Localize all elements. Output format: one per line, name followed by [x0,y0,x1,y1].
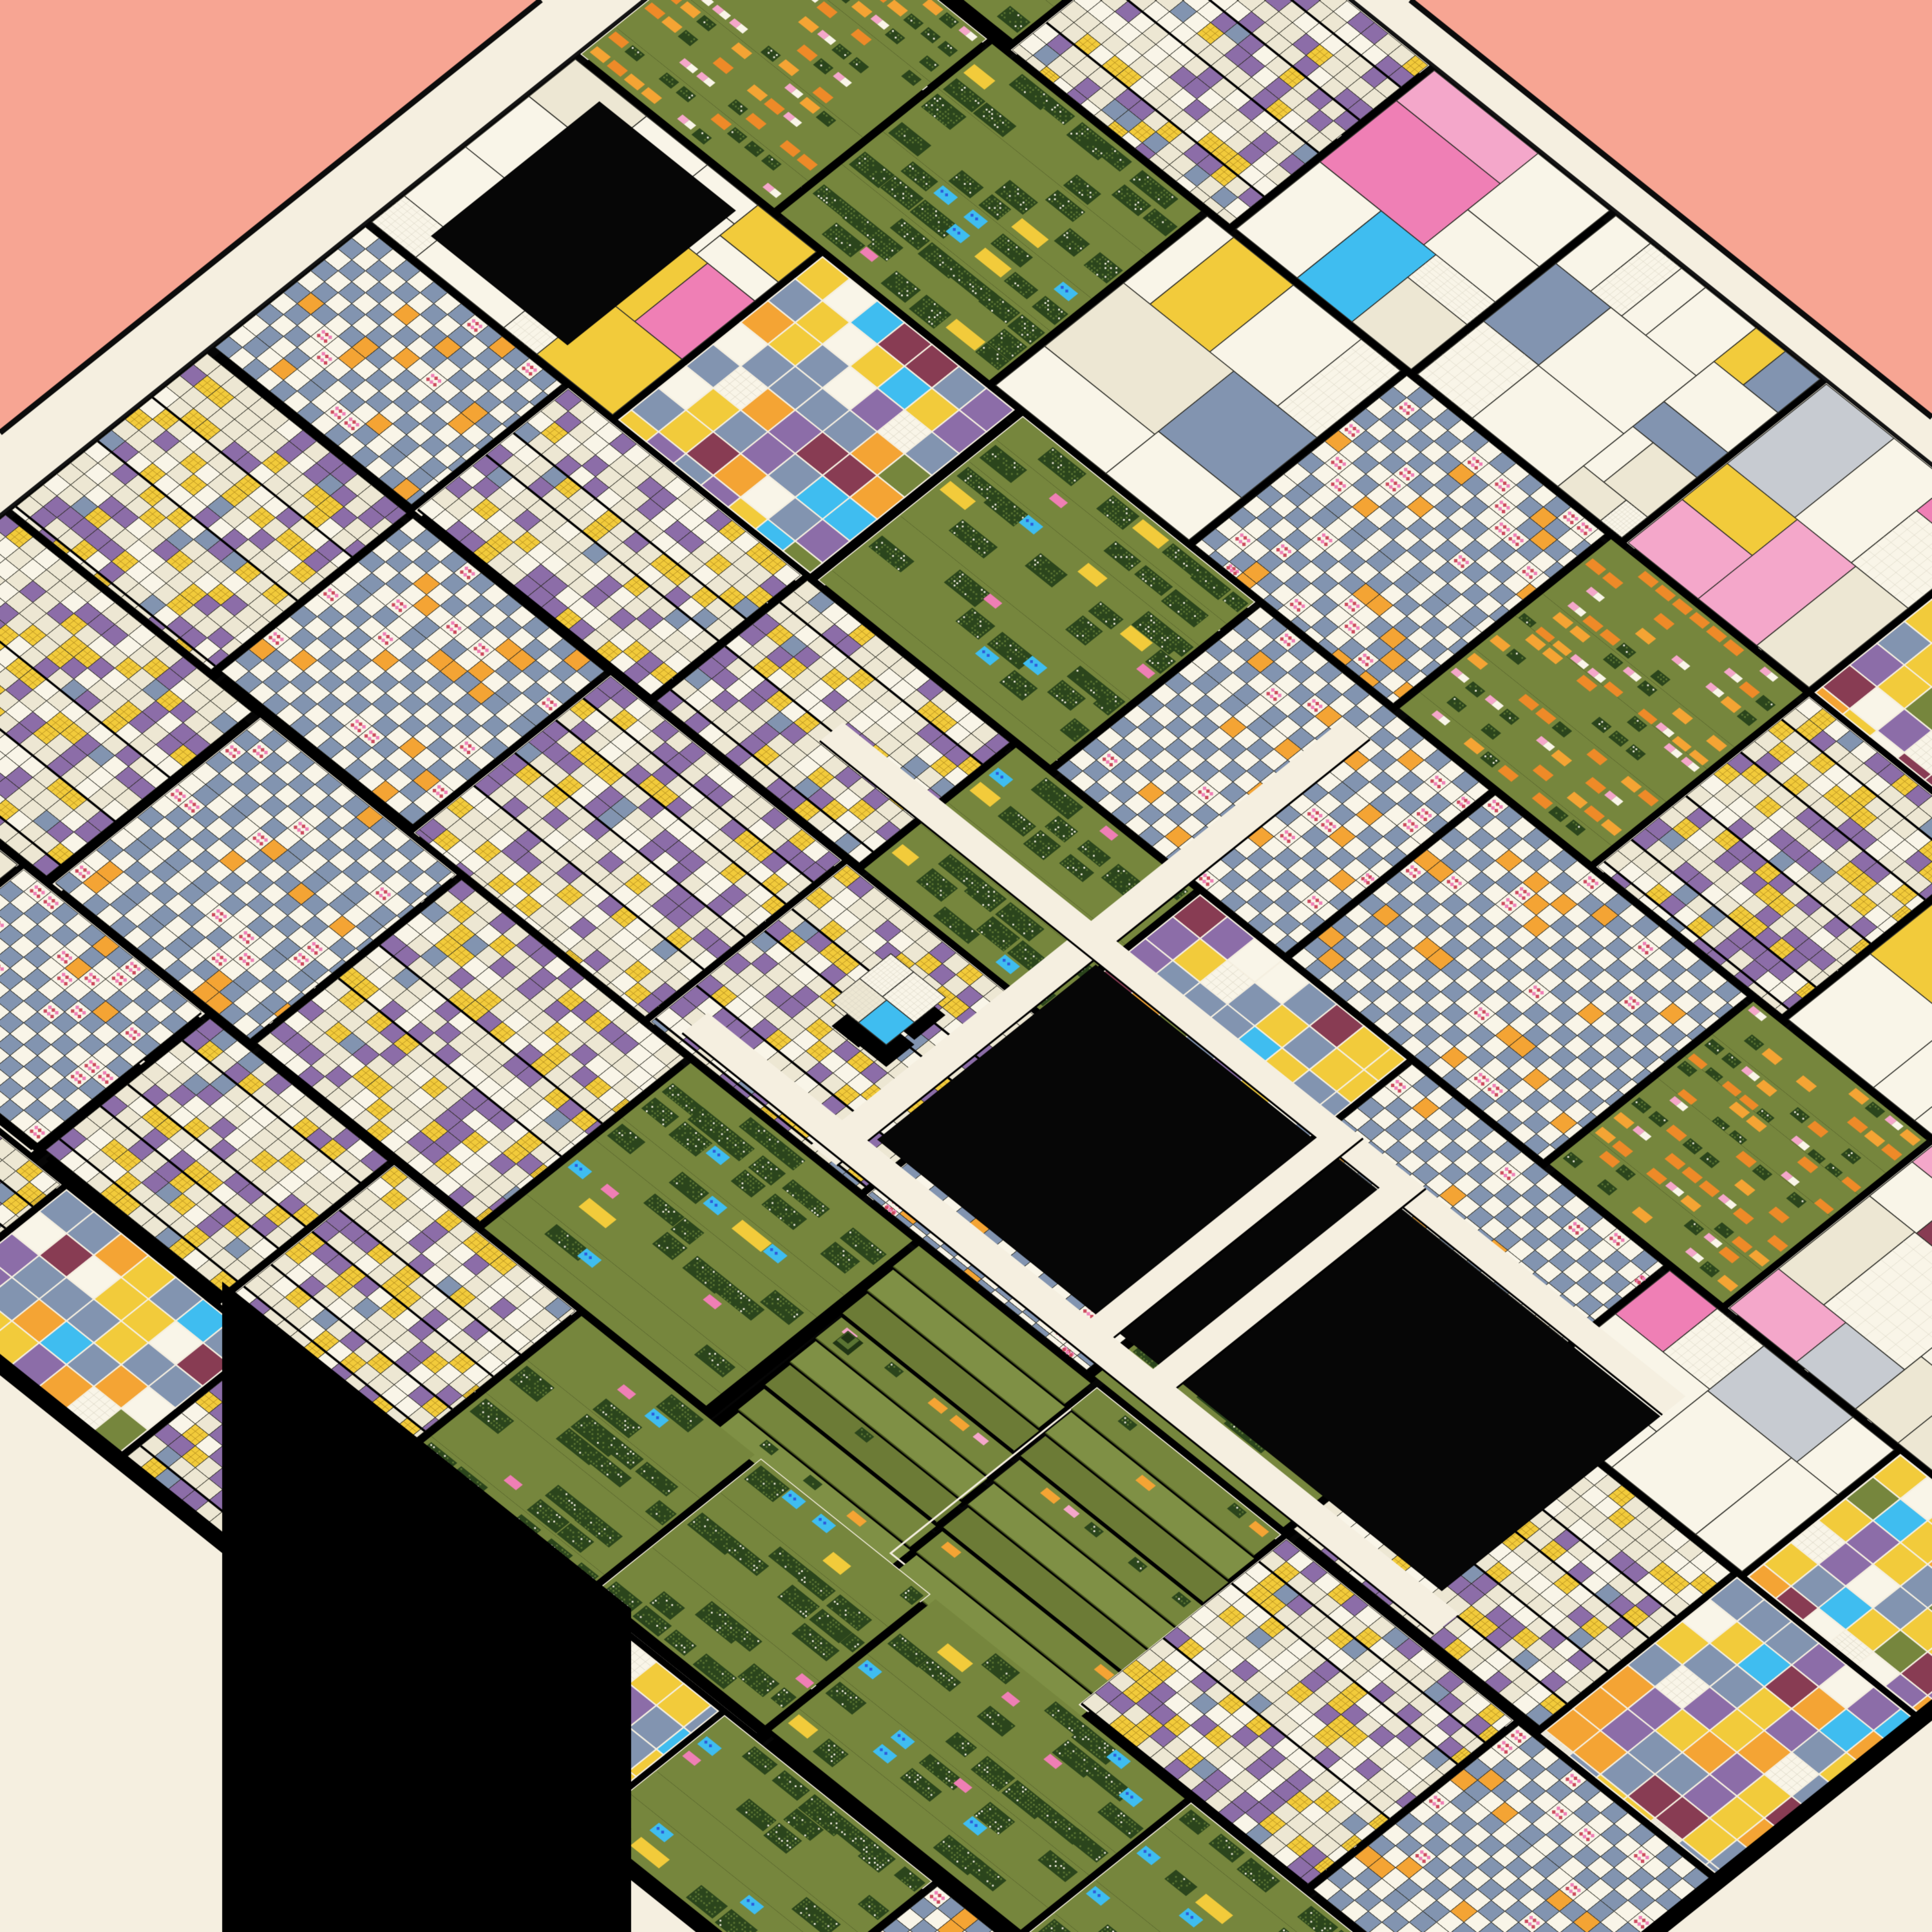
artwork [0,0,1932,1932]
generative-city-canvas [0,0,1932,1932]
